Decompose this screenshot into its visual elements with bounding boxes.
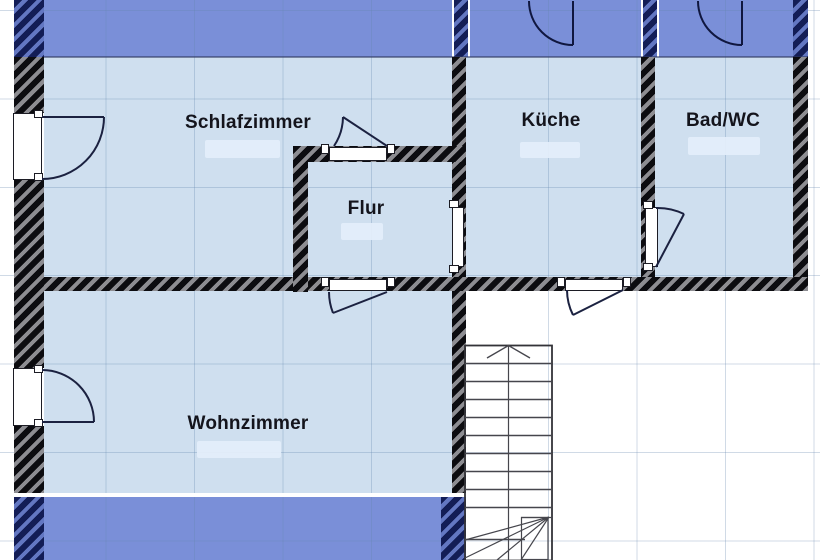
door-jamb <box>449 200 459 208</box>
door-jamb <box>34 110 43 118</box>
wall-exterior-left-b <box>14 180 44 368</box>
area-label-ghost-flur <box>341 223 383 240</box>
room-label-schlafzimmer: Schlafzimmer <box>183 111 313 135</box>
area-label-ghost-schlafzimmer <box>205 140 280 158</box>
wall-navy-mid2-top <box>641 0 659 57</box>
floorplan-canvas: Schlafzimmer Küche Bad/WC Flur Wohnzimme… <box>0 0 820 560</box>
door-jamb <box>557 277 565 287</box>
room-label-kueche: Küche <box>511 109 591 133</box>
room-area-upper <box>44 57 793 291</box>
stair-winder-treads <box>465 517 552 560</box>
adjacent-level-bottom-strip <box>44 496 443 560</box>
door-jamb <box>321 277 329 287</box>
door-opening-kueche-hall <box>565 279 623 291</box>
wall-navy-left-top <box>14 0 44 57</box>
door-jamb <box>34 365 43 373</box>
door-jamb <box>321 144 329 154</box>
room-label-wohnzimmer: Wohnzimmer <box>183 412 313 436</box>
wall-exterior-right <box>793 57 808 291</box>
wall-flur-vertical <box>293 146 308 292</box>
door-opening-wohnzimmer-ext <box>13 368 42 426</box>
wall-navy-mid1-top <box>452 0 470 57</box>
area-label-ghost-wohnzimmer <box>197 441 281 458</box>
room-area-wohnzimmer <box>44 291 452 494</box>
door-opening-badwc <box>645 207 658 267</box>
door-jamb <box>387 144 395 154</box>
door-opening-schlafzimmer-ext <box>13 113 42 180</box>
wall-stairwell <box>452 291 466 496</box>
wall-exterior-left-a <box>14 57 44 113</box>
door-swing-kueche-hall <box>567 290 623 315</box>
stair-direction-arrow <box>487 346 530 359</box>
door-jamb <box>623 277 631 287</box>
door-jamb <box>643 263 653 271</box>
door-jamb <box>643 201 653 209</box>
room-label-flur: Flur <box>336 197 396 221</box>
adjacent-level-top-strip <box>44 0 808 57</box>
wall-middle-horizontal <box>44 277 808 291</box>
wall-navy-right-top <box>793 0 808 57</box>
passage-opening-flur-kueche <box>452 207 464 267</box>
wall-navy-left-bottom <box>14 496 44 560</box>
door-jamb <box>34 419 43 427</box>
door-opening-schlafzimmer-flur <box>329 147 387 161</box>
wall-exterior-left-c <box>14 426 44 496</box>
area-label-ghost-badwc <box>688 137 760 155</box>
door-jamb <box>34 173 43 181</box>
level-boundary-line <box>44 56 808 58</box>
door-opening-flur-wohnzimmer <box>329 279 387 291</box>
door-jamb <box>387 277 395 287</box>
area-label-ghost-kueche <box>520 142 580 158</box>
level-separator-line <box>12 493 466 497</box>
room-label-badwc: Bad/WC <box>683 109 763 133</box>
staircase <box>465 345 552 560</box>
wall-navy-right-bottom <box>441 496 466 560</box>
door-jamb <box>449 265 459 273</box>
